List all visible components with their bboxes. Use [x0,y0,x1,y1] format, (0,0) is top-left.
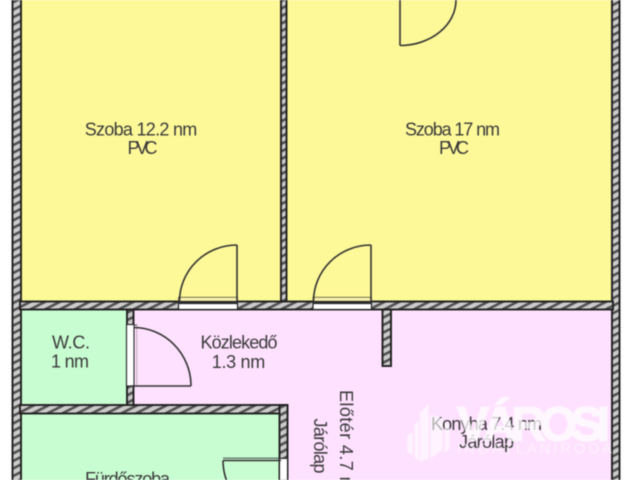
svg-text:W.C.: W.C. [52,333,90,353]
svg-text:1.3 nm: 1.3 nm [212,352,266,372]
svg-text:PVC: PVC [439,138,469,158]
svg-text:1 nm: 1 nm [51,352,89,372]
svg-text:Fürdőszoba: Fürdőszoba [85,469,171,480]
svg-text:Közlekedő: Közlekedő [201,333,278,353]
svg-text:Szoba 17 nm: Szoba 17 nm [405,120,500,140]
svg-text:Járólap: Járólap [310,419,330,474]
svg-text:Előtér 4.7 nm: Előtér 4.7 nm [336,390,356,480]
svg-text:INGATLANIRODA: INGATLANIRODA [457,441,612,458]
svg-text:Szoba 12.2 nm: Szoba 12.2 nm [85,120,198,140]
svg-text:PVC: PVC [128,138,158,158]
